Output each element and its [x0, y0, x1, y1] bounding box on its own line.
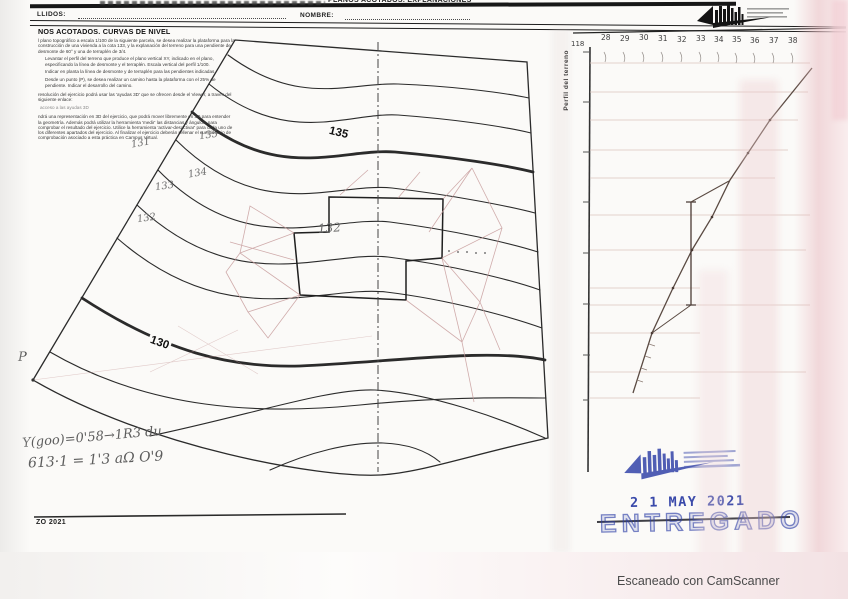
profile-elevation-value: 33 — [696, 34, 706, 43]
exercise-instructions: NOS ACOTADOS. CURVAS DE NIVEL l plano to… — [38, 27, 235, 143]
scan-crease — [552, 28, 570, 553]
footer-code: ZO 2021 — [36, 519, 66, 526]
building-platform-outline — [294, 197, 443, 300]
profile-axis — [588, 47, 590, 472]
number-tick-arcs — [604, 52, 793, 63]
instruction-paragraph: Desde un punto (P), se desea realizar un… — [45, 77, 235, 88]
contour-135-thick — [192, 112, 533, 172]
sheet-title-illegible — [100, 1, 325, 5]
profile-corner-value: 118 — [571, 40, 584, 48]
sheet-title: PLANOS ACOTADOS. EXPLANACIONES — [328, 0, 538, 4]
profile-elevation-value: 28 — [601, 33, 611, 42]
profile-elevation-value: 32 — [677, 35, 687, 44]
hill-lens — [270, 443, 440, 470]
exercise-title: NOS ACOTADOS. CURVAS DE NIVEL — [38, 27, 235, 36]
scan-shadow-left — [0, 0, 30, 599]
scan-pink-streak — [698, 270, 728, 599]
profile-elevation-value: 34 — [714, 35, 724, 44]
profile-elevation-value: 36 — [750, 36, 760, 45]
instruction-paragraph: Levantar el perfil del terreno que produ… — [45, 56, 235, 67]
name-field — [345, 18, 470, 20]
profile-elevation-value: 31 — [658, 34, 668, 43]
logo-text-lines — [747, 8, 789, 18]
surname-label: LLIDOS: — [37, 11, 66, 18]
platform-section-line — [686, 202, 696, 305]
profile-elevation-value: 30 — [639, 33, 649, 42]
footer-rule — [34, 514, 346, 517]
sheet-title-strip: PLANOS ACOTADOS. EXPLANACIONES — [328, 0, 538, 5]
scan-pink-streak — [740, 80, 778, 599]
construction-lines — [33, 168, 502, 402]
camscanner-credit: Escaneado con CamScanner — [617, 574, 780, 588]
instruction-paragraph: l plano topográfico a escala 1/100 de la… — [38, 38, 235, 54]
profile-elevation-value: 29 — [620, 34, 630, 43]
point-p-dot — [31, 378, 34, 381]
scanned-sheet: PLANOS ACOTADOS. EXPLANACIONES LLIDOS: N… — [0, 0, 848, 599]
instruction-paragraph: resolución del ejercicio podrá usar las … — [38, 92, 235, 103]
surname-field — [78, 17, 286, 19]
platform-elevation-label: 132 — [318, 220, 342, 236]
instruction-link-text: acceso a las ayudas 3D — [40, 105, 235, 110]
profile-elevation-value: 35 — [732, 35, 742, 44]
profile-elevation-value: 37 — [769, 36, 779, 45]
terrain-hatches — [637, 344, 655, 382]
instruction-paragraph: Indicar en planta la línea de desmonte y… — [45, 69, 235, 74]
scan-pink-corner — [832, 0, 848, 120]
name-label: NOMBRE: — [300, 12, 334, 19]
